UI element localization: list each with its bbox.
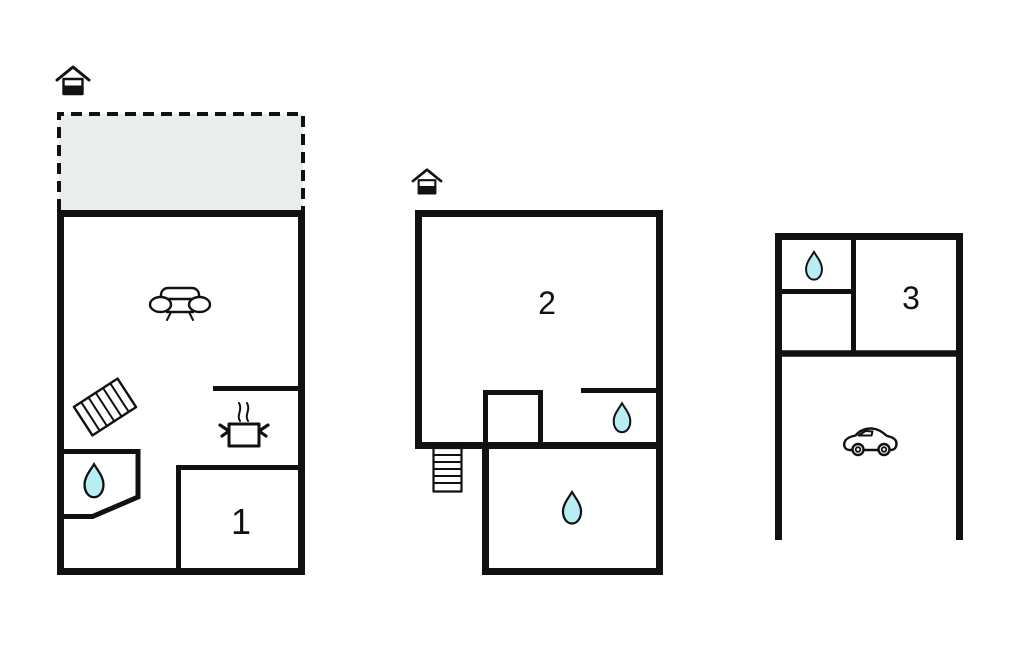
room-2-label: 2 bbox=[538, 285, 556, 321]
stairs-icon bbox=[434, 448, 462, 492]
car-icon bbox=[844, 429, 896, 455]
floor-plan-canvas: 1 bbox=[0, 0, 1024, 652]
floor-plan-1: 1 bbox=[57, 67, 303, 572]
floor-plan-3: 3 bbox=[775, 233, 963, 540]
floor-plan-2: 2 bbox=[413, 170, 663, 575]
water-drop-icon bbox=[806, 252, 822, 280]
closet-walls bbox=[483, 390, 543, 444]
water-drop-icon bbox=[563, 492, 581, 524]
floor-plan-drawing: 1 bbox=[0, 0, 1024, 652]
water-drop-icon bbox=[614, 403, 631, 432]
room-1-label: 1 bbox=[231, 501, 251, 542]
house-entrance-icon bbox=[413, 170, 441, 194]
house-entrance-icon bbox=[57, 67, 89, 94]
terrace-dashed-area bbox=[59, 114, 303, 210]
outer-walls-plan-3 bbox=[775, 233, 963, 540]
room-3-label: 3 bbox=[902, 280, 920, 316]
